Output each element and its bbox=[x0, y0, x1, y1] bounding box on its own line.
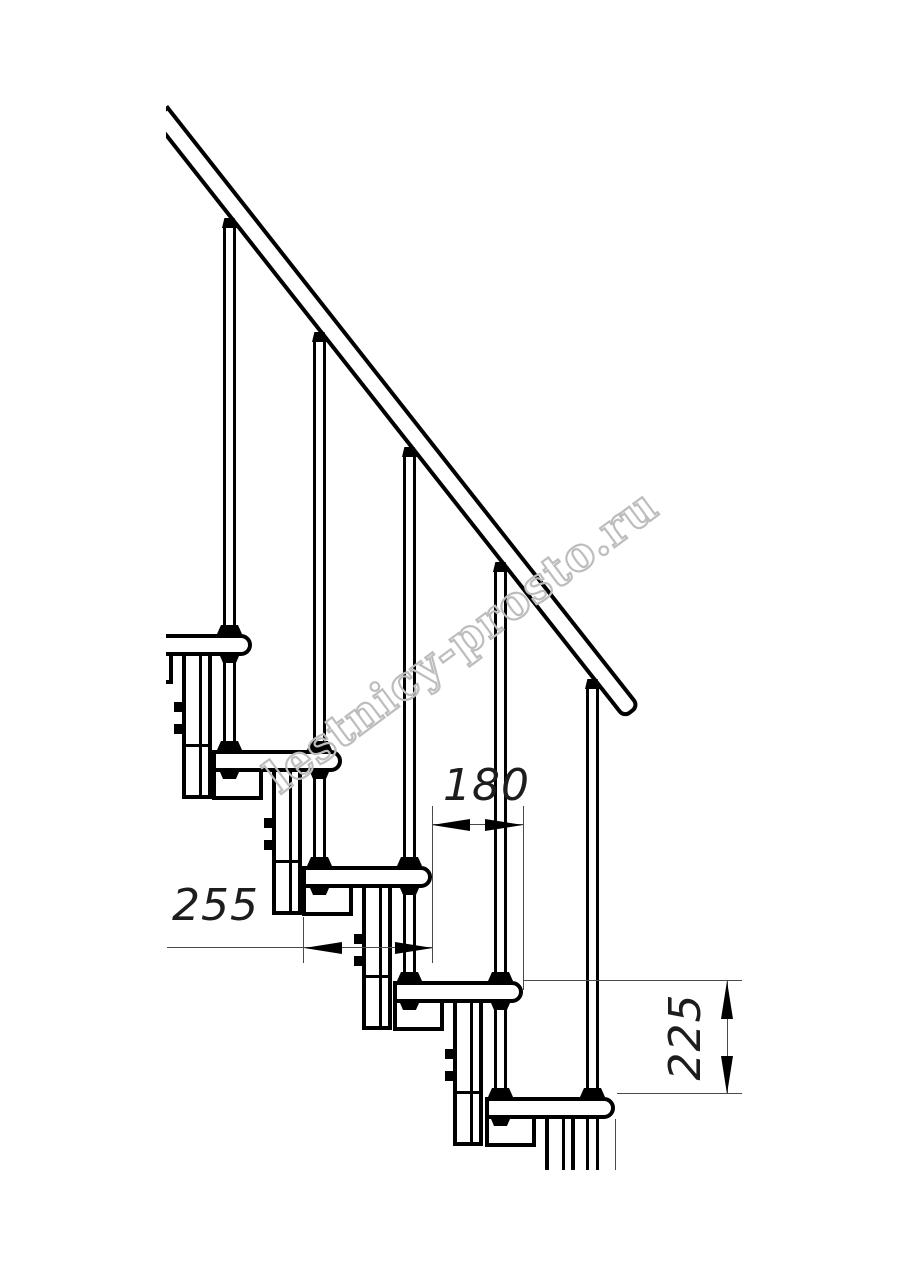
dim-label-tread-depth: 255 bbox=[172, 884, 259, 928]
baluster-flange-icon bbox=[488, 972, 513, 981]
dim-line-tread-depth bbox=[167, 947, 433, 948]
baluster-nut-icon bbox=[220, 772, 239, 779]
module-bolt-icon bbox=[445, 1049, 455, 1059]
module-joint-line-3 bbox=[362, 975, 392, 978]
rail-collar-icon bbox=[493, 562, 508, 572]
support-module-4 bbox=[453, 1003, 483, 1146]
arrow-right-icon bbox=[395, 942, 433, 954]
tread-3 bbox=[302, 866, 432, 888]
module-joint-line-1 bbox=[182, 744, 212, 747]
baluster-flange-icon bbox=[217, 741, 242, 750]
module-joint-line-2 bbox=[272, 860, 302, 863]
rail-collar-icon bbox=[312, 332, 327, 342]
tread-front-edge-line bbox=[615, 1119, 616, 1170]
module-bolt-icon bbox=[174, 724, 184, 734]
baluster-5-lower bbox=[586, 1119, 599, 1170]
ext-line-rise-top bbox=[524, 980, 742, 981]
baluster-3-lower bbox=[403, 888, 416, 972]
module-bolt-icon bbox=[445, 1071, 455, 1081]
baluster-1-lower bbox=[223, 656, 236, 741]
support-module-inner-line-3 bbox=[379, 888, 382, 1030]
drawing-left-cut bbox=[0, 0, 166, 1280]
baluster-flange-icon bbox=[397, 972, 422, 981]
rail-collar-icon bbox=[402, 447, 417, 457]
arrow-left-icon bbox=[304, 942, 342, 954]
dim-label-going: 180 bbox=[443, 764, 530, 808]
tread-4 bbox=[393, 981, 523, 1003]
baluster-4-lower bbox=[494, 1003, 507, 1088]
support-module-inner-line-4 bbox=[470, 1003, 473, 1146]
baluster-nut-icon bbox=[310, 888, 329, 895]
baluster-nut-icon bbox=[400, 888, 419, 895]
baluster-nut-icon bbox=[220, 656, 239, 663]
module-bolt-icon bbox=[354, 934, 364, 944]
ext-line-tread3-back bbox=[303, 917, 304, 963]
baluster-nut-icon bbox=[400, 1003, 419, 1010]
baluster-1-upper bbox=[223, 228, 236, 625]
tread-bracket-4 bbox=[393, 1003, 444, 1031]
staircase-technical-drawing: 180 255 225 lestnicy-prosto.ru bbox=[0, 0, 914, 1280]
module-bolt-icon bbox=[174, 702, 184, 712]
support-module-inner-line-5 bbox=[562, 1119, 565, 1170]
baluster-flange-icon bbox=[307, 857, 332, 866]
rail-collar-icon bbox=[585, 679, 600, 689]
baluster-5-upper bbox=[586, 689, 599, 1088]
rail-collar-icon bbox=[222, 218, 237, 228]
tread-5 bbox=[485, 1097, 615, 1119]
baluster-2-upper bbox=[313, 342, 326, 741]
arrow-left-icon bbox=[432, 819, 470, 831]
baluster-flange-icon bbox=[580, 1088, 605, 1097]
support-module-inner-line-1 bbox=[199, 656, 202, 799]
support-module-5 bbox=[545, 1119, 575, 1170]
module-joint-line-4 bbox=[453, 1091, 483, 1094]
baluster-nut-icon bbox=[491, 1119, 510, 1126]
baluster-flange-icon bbox=[397, 857, 422, 866]
baluster-nut-icon bbox=[491, 1003, 510, 1010]
arrow-right-icon bbox=[485, 819, 523, 831]
support-module-1 bbox=[182, 656, 212, 799]
tread-bracket-3 bbox=[302, 888, 353, 916]
baluster-flange-icon bbox=[217, 625, 242, 634]
dim-label-rise: 225 bbox=[664, 994, 708, 1081]
module-bolt-icon bbox=[264, 818, 274, 828]
tread-bracket-2 bbox=[212, 772, 263, 800]
baluster-flange-icon bbox=[488, 1088, 513, 1097]
support-module-3 bbox=[362, 888, 392, 1030]
arrow-up-icon bbox=[721, 981, 733, 1019]
module-bolt-icon bbox=[354, 956, 364, 966]
ext-line-tread4-front bbox=[523, 806, 524, 990]
baluster-2-lower bbox=[313, 772, 326, 857]
arrow-down-icon bbox=[721, 1056, 733, 1094]
module-bolt-icon bbox=[264, 840, 274, 850]
tread-bracket-5 bbox=[485, 1119, 536, 1147]
